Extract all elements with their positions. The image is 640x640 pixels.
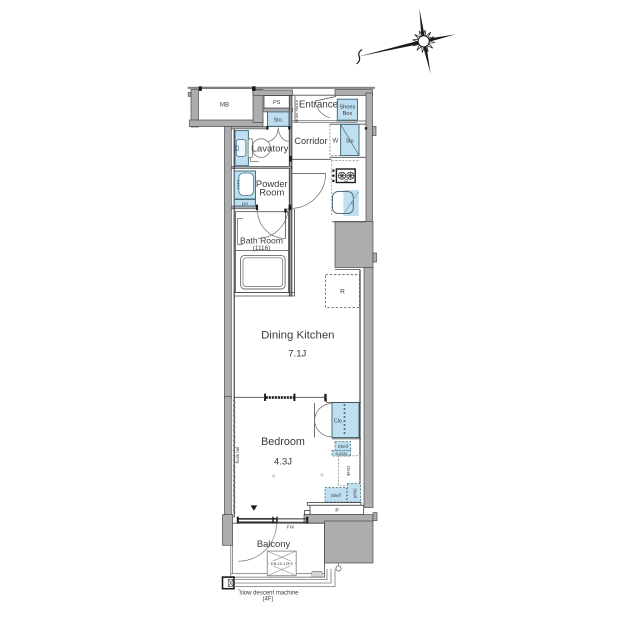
- svg-text:PS: PS: [273, 100, 281, 106]
- svg-text:R: R: [340, 288, 345, 295]
- svg-text:Sto: Sto: [346, 139, 354, 145]
- svg-text:Room: Room: [259, 186, 284, 197]
- svg-text:Shoes: Shoes: [339, 105, 355, 111]
- svg-text:Entrance: Entrance: [299, 100, 339, 111]
- svg-text:hook rail: hook rail: [235, 447, 240, 464]
- svg-text:FIX: FIX: [287, 525, 295, 531]
- svg-text:Shelf: Shelf: [338, 444, 349, 449]
- svg-text:Corridor: Corridor: [294, 136, 327, 146]
- svg-text:Bath Room: Bath Room: [240, 235, 283, 245]
- svg-text:B-5333: B-5333: [336, 452, 348, 456]
- svg-text:Bedroom: Bedroom: [261, 436, 305, 448]
- svg-text:Balcony: Balcony: [257, 538, 291, 549]
- svg-text:Shelf: Shelf: [353, 488, 358, 498]
- svg-text:7.1J: 7.1J: [288, 349, 306, 360]
- svg-text:Lavatory: Lavatory: [252, 144, 289, 155]
- svg-text:MB: MB: [220, 102, 229, 109]
- svg-text:(4F): (4F): [263, 597, 274, 603]
- svg-text:Sto.: Sto.: [273, 117, 283, 123]
- svg-text:Dining Kitchen: Dining Kitchen: [261, 330, 334, 342]
- svg-text:Desk: Desk: [346, 466, 351, 477]
- svg-text:Shelf: Shelf: [331, 493, 342, 498]
- svg-text:4.3J: 4.3J: [274, 457, 292, 468]
- svg-text:W: W: [332, 139, 338, 145]
- svg-text:Lin: Lin: [242, 201, 249, 207]
- svg-text:Clo.: Clo.: [334, 419, 344, 425]
- svg-text:Box: Box: [343, 111, 353, 117]
- svg-text:(1116): (1116): [253, 245, 271, 252]
- svg-text:EB-10-12F3: EB-10-12F3: [271, 561, 293, 566]
